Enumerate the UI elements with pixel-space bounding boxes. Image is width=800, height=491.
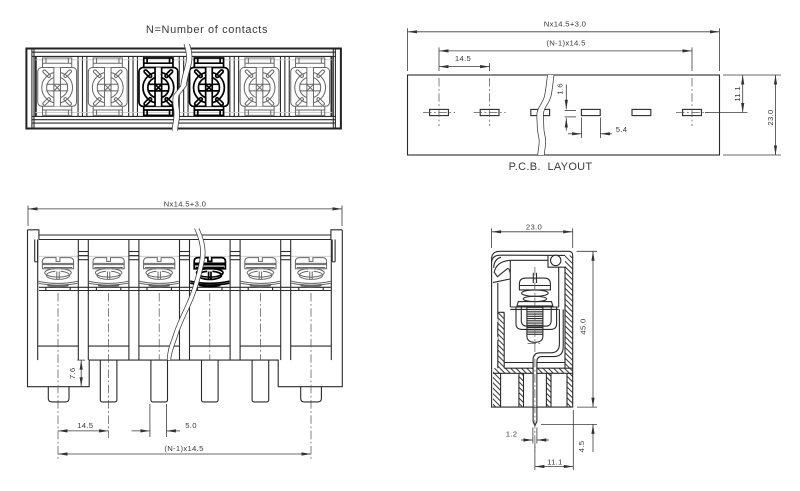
svg-text:14.5: 14.5: [455, 54, 471, 63]
svg-text:5.4: 5.4: [616, 125, 628, 134]
svg-text:1.6: 1.6: [556, 83, 565, 95]
svg-text:1.2: 1.2: [506, 430, 518, 439]
svg-text:Nx14.5+3.0: Nx14.5+3.0: [164, 199, 207, 208]
svg-text:Nx14.5+3.0: Nx14.5+3.0: [544, 20, 587, 29]
svg-text:23.0: 23.0: [526, 222, 542, 231]
svg-text:23.0: 23.0: [766, 109, 775, 125]
svg-text:N=Number of contacts: N=Number of contacts: [146, 24, 268, 36]
svg-text:11.1: 11.1: [547, 458, 563, 467]
svg-text:(N-1)x14.5: (N-1)x14.5: [546, 39, 585, 48]
svg-text:(N-1)x14.5: (N-1)x14.5: [164, 444, 203, 453]
svg-text:7.6: 7.6: [68, 368, 77, 380]
svg-text:4.5: 4.5: [577, 441, 586, 453]
svg-text:5.0: 5.0: [185, 421, 197, 430]
svg-text:14.5: 14.5: [77, 421, 93, 430]
svg-text:45.0: 45.0: [578, 318, 587, 334]
svg-text:11.1: 11.1: [733, 86, 742, 102]
svg-text:P.C.B. LAYOUT: P.C.B. LAYOUT: [509, 161, 593, 173]
